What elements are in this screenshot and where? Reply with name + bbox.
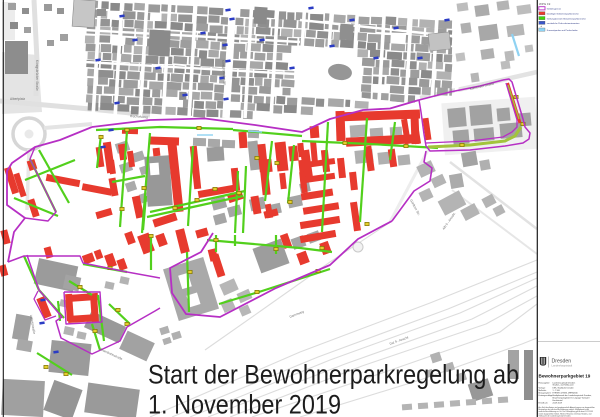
- svg-text:Hechtviertel: Hechtviertel: [553, 399, 564, 402]
- svg-text:Gebietsgrenze: Gebietsgrenze: [547, 8, 562, 11]
- svg-text:zusätzliche Parkscheinautomate: zusätzliche Parkscheinautomaten: [547, 22, 580, 25]
- svg-text:Maßstab:: Maßstab:: [539, 389, 547, 392]
- svg-text:Straßen- und Tiefbauamt: Straßen- und Tiefbauamt: [553, 384, 574, 387]
- svg-text:Herausgeber:: Herausgeber:: [539, 381, 551, 384]
- svg-text:1. November 2019: 1. November 2019: [148, 390, 341, 417]
- svg-text:Königsbrücker Straße: Königsbrücker Straße: [35, 60, 39, 91]
- svg-text:WPG 19: WPG 19: [539, 2, 551, 6]
- svg-text:Erstellt am:: Erstellt am:: [539, 401, 549, 404]
- svg-text:bewilligte Gebührenparkbereich: bewilligte Gebührenparkbereiche: [547, 13, 580, 16]
- svg-text:Albertplatz: Albertplatz: [10, 97, 25, 101]
- svg-text:24.09.2019: 24.09.2019: [553, 402, 562, 404]
- svg-text:Kurzzeitparken mit Parkscheibe: Kurzzeitparken mit Parkscheibe: [547, 29, 579, 32]
- svg-text:Bewohnerparkgebiet 19: Bewohnerparkgebiet 19: [539, 374, 591, 379]
- svg-text:Landeshauptstadt: Landeshauptstadt: [552, 364, 573, 368]
- svg-text:Kartengrundlage:: Kartengrundlage:: [539, 394, 554, 397]
- svg-text:Geltungsbereich Bewohnerparkbe: Geltungsbereich Bewohnerparkbereiche: [547, 17, 587, 20]
- svg-text:Start der Bewohnerparkregelung: Start der Bewohnerparkregelung ab: [148, 360, 519, 390]
- svg-text:+: +: [540, 24, 542, 28]
